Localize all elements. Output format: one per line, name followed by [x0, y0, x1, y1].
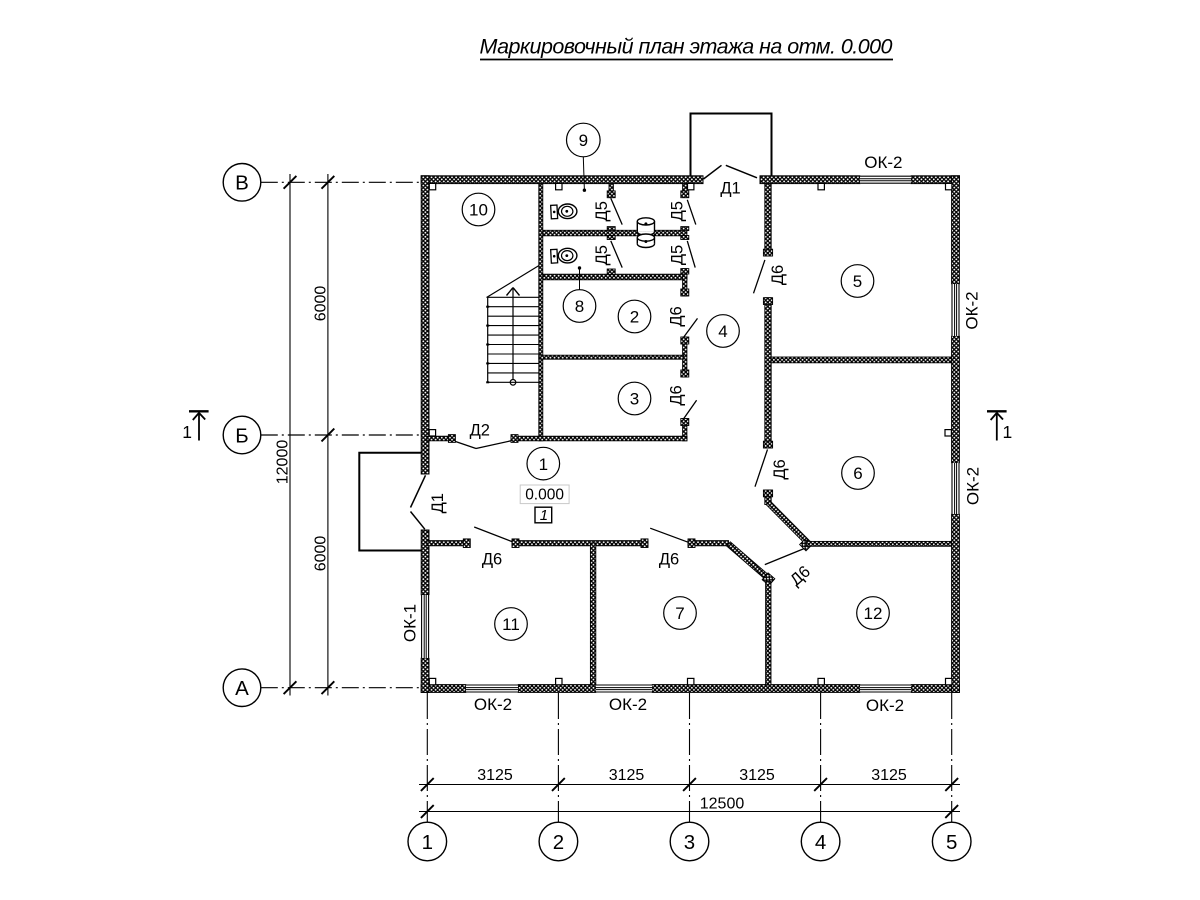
svg-text:ОК-2: ОК-2 — [963, 291, 982, 329]
svg-text:Маркировочный план этажа на от: Маркировочный план этажа на отм. 0.000 — [480, 34, 893, 58]
svg-text:9: 9 — [579, 131, 588, 150]
svg-text:А: А — [235, 677, 249, 700]
svg-text:5: 5 — [946, 831, 957, 854]
svg-text:Д6: Д6 — [659, 550, 679, 568]
svg-text:1: 1 — [1003, 422, 1013, 442]
svg-text:Д6: Д6 — [668, 306, 686, 326]
svg-text:2: 2 — [553, 831, 564, 854]
svg-text:ОК-2: ОК-2 — [964, 467, 983, 505]
svg-text:1: 1 — [182, 422, 192, 442]
svg-text:3125: 3125 — [871, 767, 907, 784]
svg-text:4: 4 — [815, 831, 826, 854]
svg-text:4: 4 — [718, 322, 727, 341]
svg-text:3125: 3125 — [739, 767, 775, 784]
svg-text:ОК-2: ОК-2 — [474, 695, 512, 714]
svg-text:Д5: Д5 — [593, 245, 611, 265]
svg-text:8: 8 — [575, 297, 584, 316]
svg-text:10: 10 — [469, 201, 488, 220]
svg-text:Д6: Д6 — [482, 550, 502, 568]
svg-text:Д6: Д6 — [769, 265, 787, 285]
svg-text:11: 11 — [502, 615, 520, 634]
svg-text:3: 3 — [630, 390, 639, 409]
svg-text:ОК-2: ОК-2 — [609, 695, 647, 714]
svg-text:В: В — [235, 172, 249, 195]
svg-text:Д5: Д5 — [593, 201, 611, 221]
svg-text:ОК-1: ОК-1 — [401, 604, 420, 642]
svg-text:Д6: Д6 — [668, 385, 686, 405]
svg-text:7: 7 — [675, 604, 684, 623]
svg-text:1: 1 — [539, 455, 548, 474]
svg-text:Д6: Д6 — [787, 563, 814, 590]
svg-text:12: 12 — [864, 604, 883, 623]
svg-text:Д5: Д5 — [669, 245, 687, 265]
svg-text:3125: 3125 — [477, 767, 513, 784]
svg-text:Д1: Д1 — [429, 493, 447, 513]
svg-text:0.000: 0.000 — [525, 487, 564, 504]
svg-text:Д2: Д2 — [470, 422, 490, 440]
svg-text:Д6: Д6 — [771, 459, 789, 479]
svg-text:12500: 12500 — [700, 795, 745, 812]
svg-text:ОК-2: ОК-2 — [864, 153, 902, 172]
svg-text:1: 1 — [422, 831, 433, 854]
svg-text:1: 1 — [540, 507, 548, 524]
svg-text:3: 3 — [684, 831, 695, 854]
svg-text:6000: 6000 — [312, 536, 329, 572]
svg-text:Д1: Д1 — [720, 180, 740, 198]
svg-text:6000: 6000 — [312, 286, 329, 322]
svg-text:2: 2 — [630, 308, 639, 327]
svg-text:3125: 3125 — [609, 767, 645, 784]
svg-text:Б: Б — [235, 424, 248, 447]
svg-text:Д5: Д5 — [669, 201, 687, 221]
svg-text:6: 6 — [853, 464, 862, 483]
svg-text:12000: 12000 — [275, 440, 292, 485]
svg-text:ОК-2: ОК-2 — [866, 696, 904, 715]
svg-text:5: 5 — [853, 272, 862, 291]
